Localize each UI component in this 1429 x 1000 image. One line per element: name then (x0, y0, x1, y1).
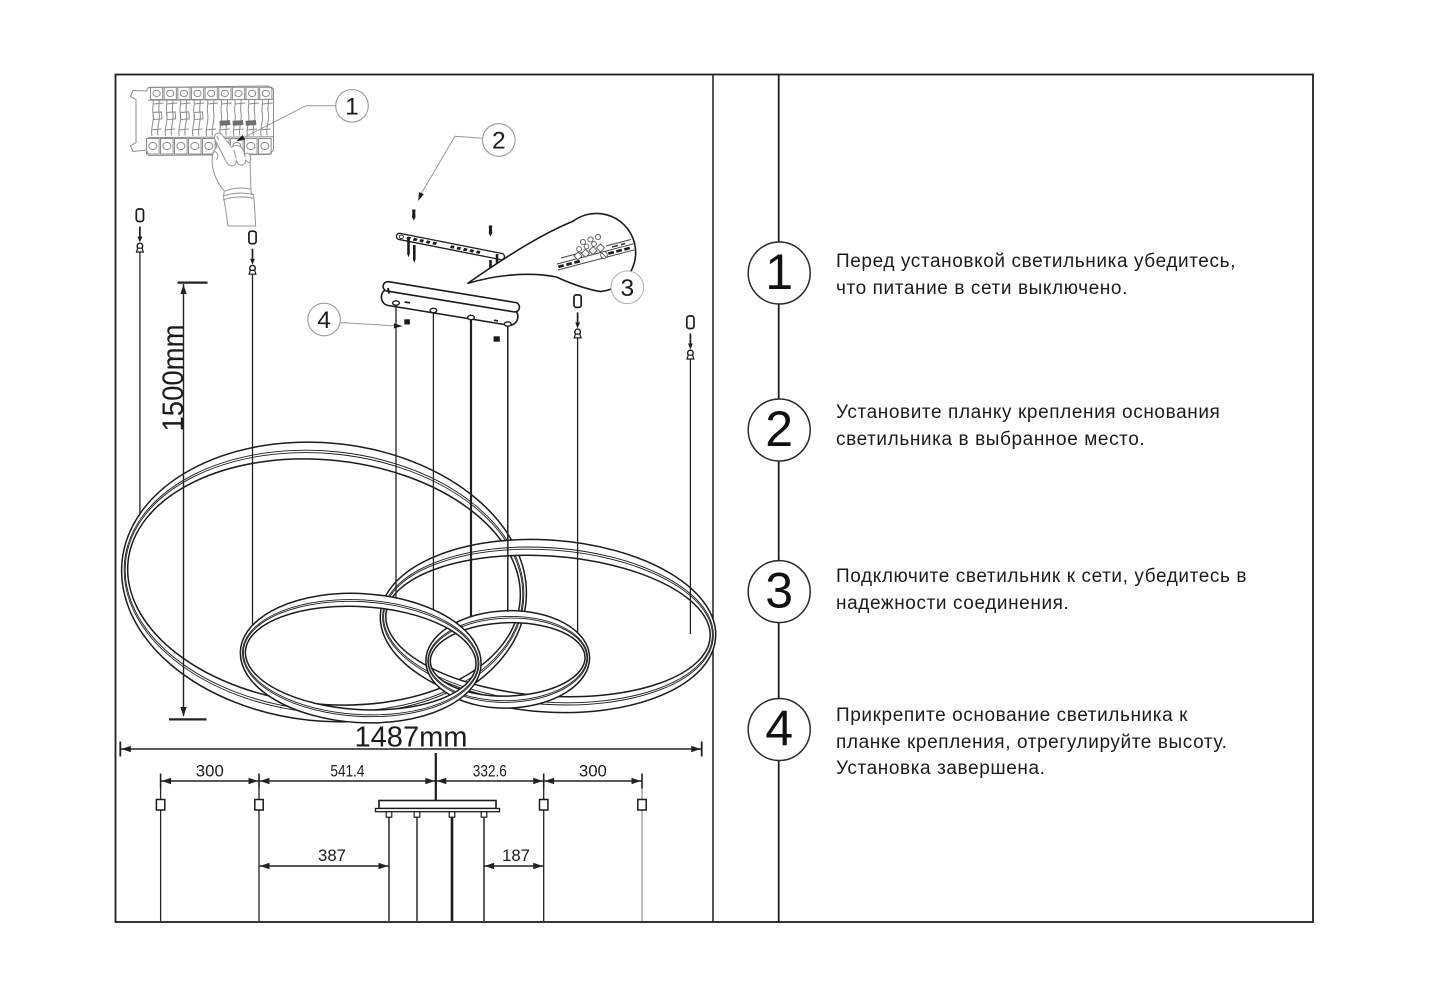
svg-text:3: 3 (620, 275, 634, 302)
svg-text:300: 300 (196, 762, 224, 781)
svg-text:2: 2 (492, 128, 506, 155)
svg-text:1500mm: 1500mm (157, 325, 190, 432)
svg-text:187: 187 (502, 846, 530, 865)
svg-text:332.6: 332.6 (473, 762, 507, 781)
svg-text:1487mm: 1487mm (355, 721, 468, 753)
svg-text:300: 300 (579, 762, 607, 781)
svg-text:1: 1 (765, 244, 793, 300)
svg-text:3: 3 (765, 563, 793, 619)
svg-text:4: 4 (765, 701, 793, 757)
svg-text:4: 4 (317, 307, 331, 334)
svg-text:1: 1 (345, 93, 359, 120)
svg-text:387: 387 (318, 846, 346, 865)
svg-text:2: 2 (765, 401, 793, 457)
svg-text:541.4: 541.4 (330, 762, 364, 781)
